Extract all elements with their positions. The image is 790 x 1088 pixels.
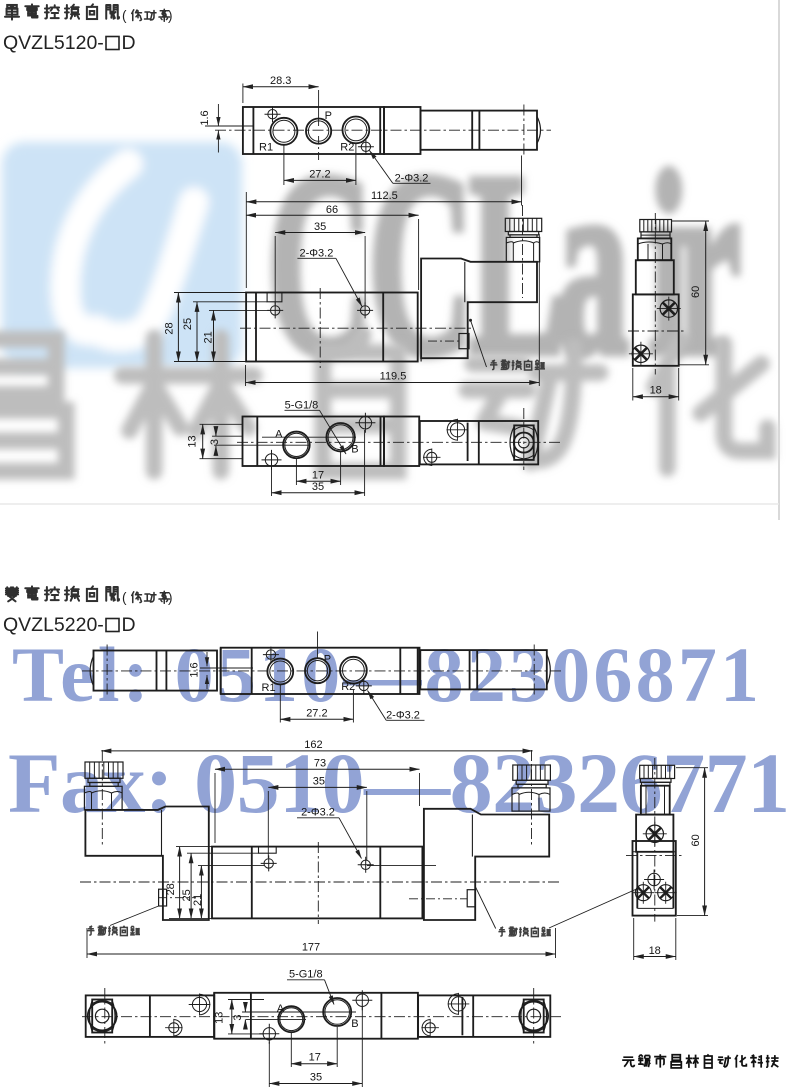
svg-text:B: B — [351, 444, 358, 456]
svg-text:35: 35 — [312, 481, 324, 493]
svg-text:D: D — [122, 614, 136, 636]
svg-text:21: 21 — [192, 894, 204, 906]
svg-text:27.2: 27.2 — [309, 169, 330, 181]
svg-text:2-Φ3.2: 2-Φ3.2 — [301, 806, 335, 818]
svg-text:QVZL5120-: QVZL5120- — [3, 32, 104, 54]
svg-text:5-G1/8: 5-G1/8 — [285, 400, 319, 412]
svg-text:5-G1/8: 5-G1/8 — [289, 969, 323, 981]
svg-text:A: A — [277, 1003, 285, 1015]
svg-text:3: 3 — [209, 439, 221, 445]
svg-text:R1: R1 — [259, 142, 273, 154]
svg-text:17: 17 — [312, 469, 324, 481]
svg-text:35: 35 — [310, 1072, 322, 1084]
svg-text:73: 73 — [314, 758, 326, 770]
svg-text:A: A — [275, 429, 283, 441]
svg-text:2-Φ3.2: 2-Φ3.2 — [299, 248, 333, 260]
svg-text:P: P — [324, 654, 331, 666]
svg-text:): ) — [168, 8, 173, 23]
svg-text:1.6: 1.6 — [189, 662, 201, 677]
svg-text:119.5: 119.5 — [380, 371, 407, 383]
svg-text:QVZL5220-: QVZL5220- — [3, 614, 104, 636]
svg-text:28: 28 — [165, 883, 177, 895]
svg-text:28: 28 — [164, 322, 176, 334]
svg-text:): ) — [168, 590, 173, 605]
svg-text:R2: R2 — [340, 142, 354, 154]
svg-text:66: 66 — [326, 204, 338, 216]
svg-text:35: 35 — [313, 776, 325, 788]
svg-text:D: D — [122, 32, 136, 54]
svg-text:P: P — [325, 110, 332, 122]
svg-text:(: ( — [122, 8, 127, 23]
svg-text:21: 21 — [203, 331, 215, 343]
svg-text:35: 35 — [314, 221, 326, 233]
svg-text:B: B — [351, 1018, 358, 1030]
svg-text:3: 3 — [232, 1014, 244, 1020]
svg-text:25: 25 — [182, 318, 194, 330]
svg-text:27.2: 27.2 — [306, 708, 327, 720]
svg-text:(: ( — [122, 590, 127, 605]
svg-text:18: 18 — [650, 384, 662, 396]
svg-text:2-Φ3.2: 2-Φ3.2 — [386, 709, 420, 721]
svg-text:162: 162 — [304, 739, 322, 751]
svg-text:60: 60 — [690, 286, 702, 298]
svg-text:2-Φ3.2: 2-Φ3.2 — [395, 173, 429, 185]
svg-text:17: 17 — [309, 1052, 321, 1064]
svg-text:18: 18 — [649, 945, 661, 957]
svg-text:60: 60 — [690, 834, 702, 846]
svg-text:R1: R1 — [262, 682, 276, 694]
svg-text:13: 13 — [214, 1012, 226, 1024]
svg-text:28.3: 28.3 — [270, 75, 291, 87]
svg-text:R2: R2 — [341, 681, 355, 693]
svg-text:112.5: 112.5 — [371, 190, 398, 202]
svg-text:13: 13 — [187, 435, 199, 447]
svg-text:177: 177 — [302, 942, 320, 954]
svg-text:Fax: 0510—82326771: Fax: 0510—82326771 — [8, 735, 790, 831]
svg-text:1.6: 1.6 — [199, 110, 211, 125]
svg-text:Tel: 0510—82306871: Tel: 0510—82306871 — [12, 631, 762, 718]
